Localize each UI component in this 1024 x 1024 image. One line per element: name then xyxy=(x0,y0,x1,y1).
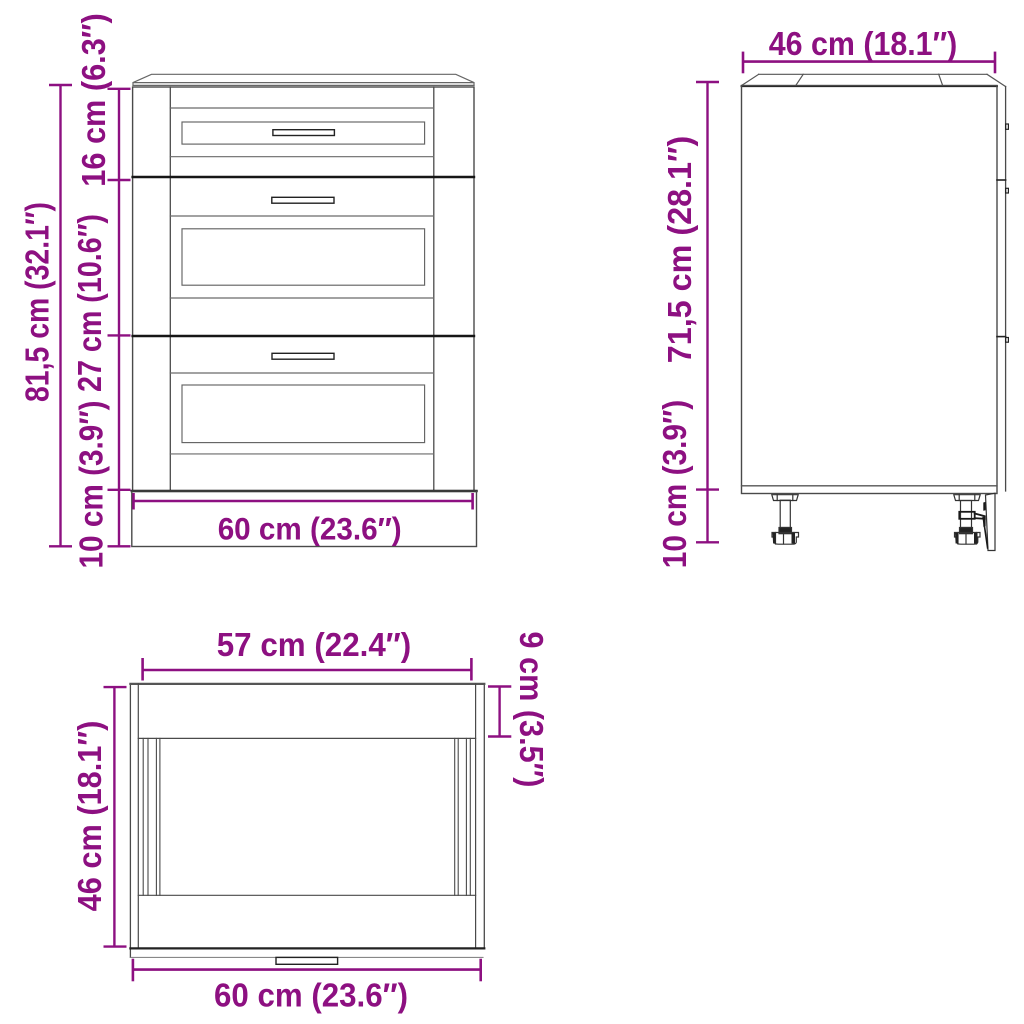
svg-text:16 cm (6.3″): 16 cm (6.3″) xyxy=(75,13,112,187)
svg-text:46 cm (18.1″): 46 cm (18.1″) xyxy=(769,25,958,62)
svg-text:60 cm (23.6″): 60 cm (23.6″) xyxy=(218,511,402,547)
svg-text:46 cm (18.1″): 46 cm (18.1″) xyxy=(71,721,108,912)
svg-text:10 cm (3.9″): 10 cm (3.9″) xyxy=(656,400,693,569)
svg-text:81,5 cm (32.1″): 81,5 cm (32.1″) xyxy=(19,202,56,402)
svg-text:9 cm (3.5″): 9 cm (3.5″) xyxy=(513,632,550,788)
svg-text:10 cm (3.9″): 10 cm (3.9″) xyxy=(73,401,110,569)
svg-text:60 cm (23.6″): 60 cm (23.6″) xyxy=(214,977,408,1014)
svg-text:27 cm (10.6″): 27 cm (10.6″) xyxy=(71,214,108,392)
svg-text:57 cm (22.4″): 57 cm (22.4″) xyxy=(217,626,412,663)
svg-text:71,5 cm (28.1″): 71,5 cm (28.1″) xyxy=(661,136,698,364)
